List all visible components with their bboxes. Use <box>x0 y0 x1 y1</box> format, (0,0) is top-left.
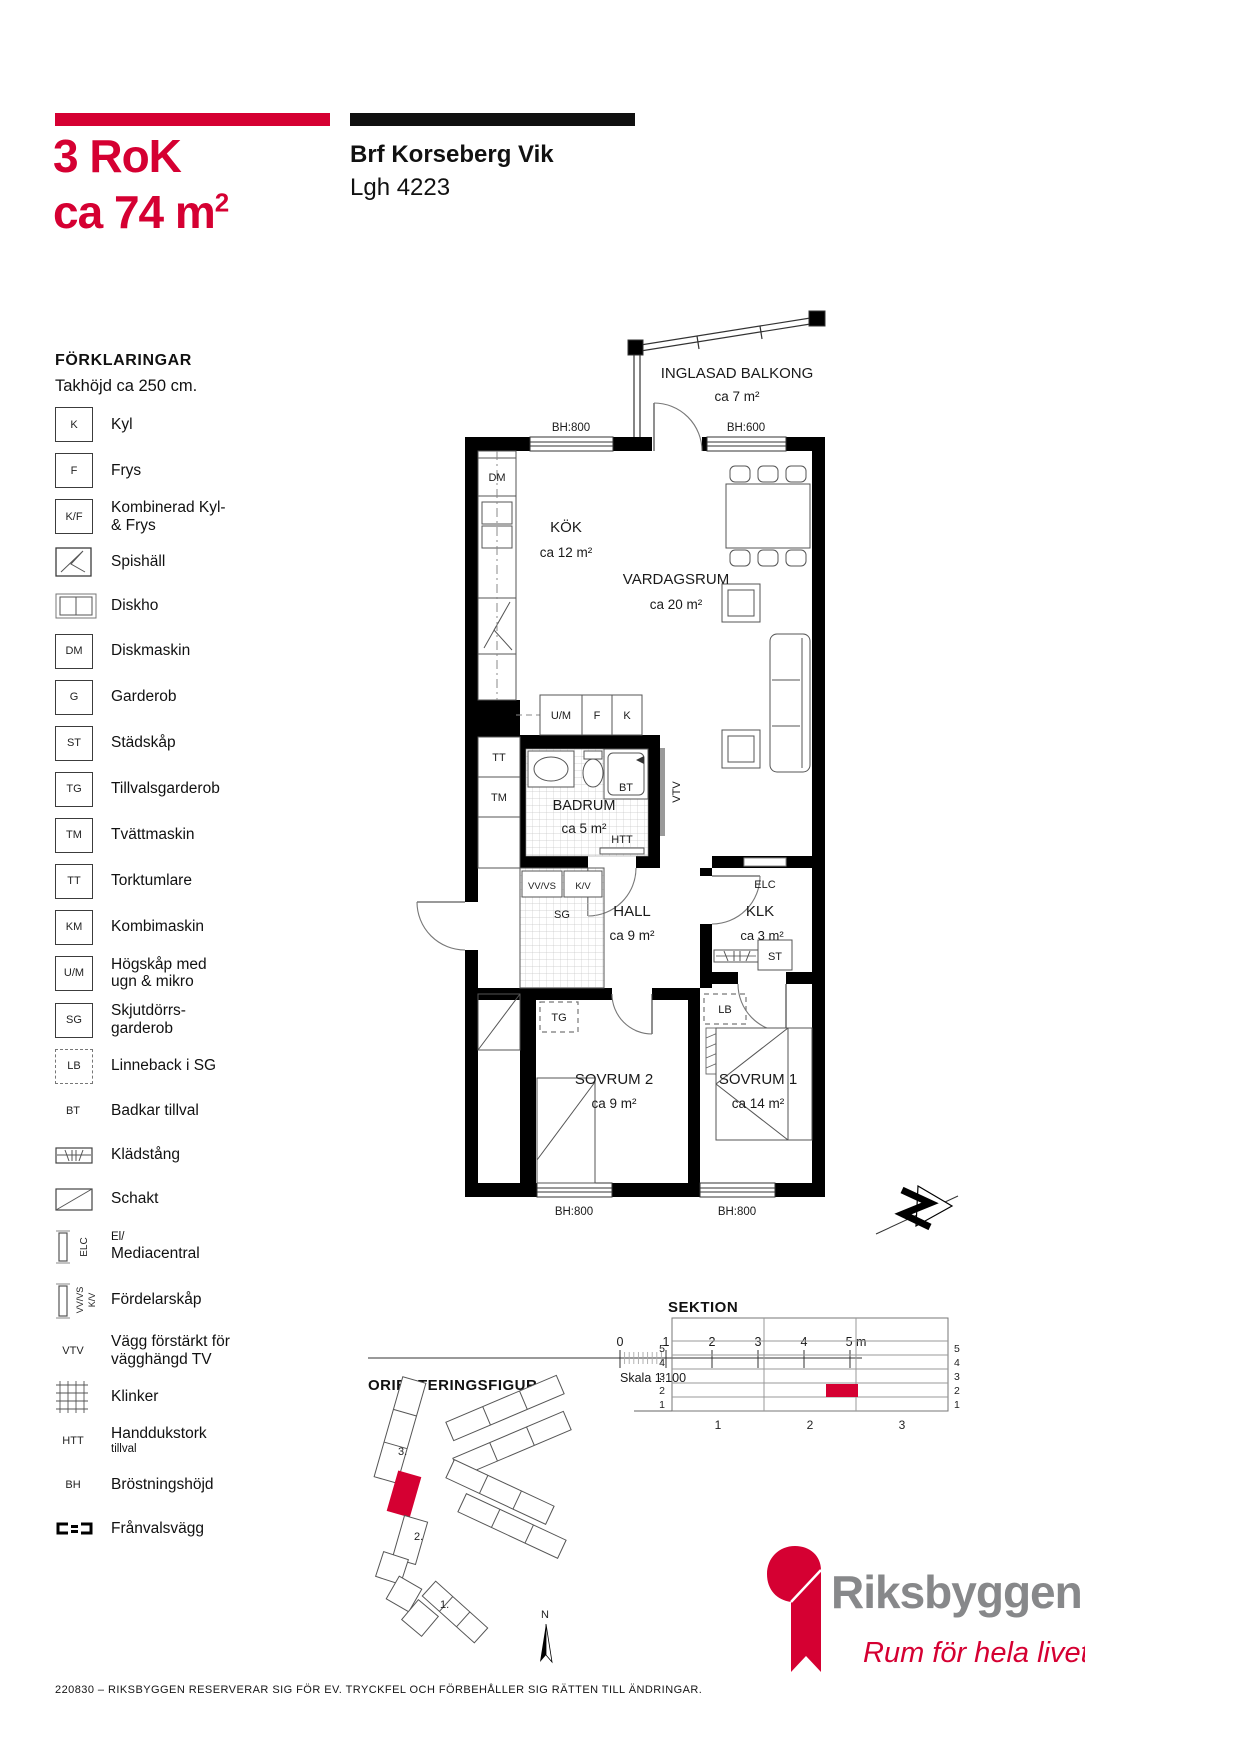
kyl-frys-symbol: K/F <box>55 499 93 534</box>
legend-subtitle: Takhöjd ca 250 cm. <box>55 377 345 396</box>
apartment-rooms: 3 RoK <box>53 128 228 184</box>
legend-item-garderob: G Garderob <box>55 680 345 715</box>
sektion-row-right: 1 <box>954 1399 960 1411</box>
bh-label-top-right: BH:600 <box>727 422 765 434</box>
kitchen-counter <box>478 451 540 715</box>
legend-item-franvalsvagg: Frånvalsvägg <box>55 1513 345 1546</box>
marker-tt: TT <box>492 752 506 764</box>
bh-label-bottom-left: BH:800 <box>555 1206 593 1218</box>
room-label-kok: KÖK <box>550 518 582 536</box>
bh-label-top-left: BH:800 <box>552 422 590 434</box>
marker-st: ST <box>768 951 782 963</box>
riksbyggen-ribbon-icon <box>767 1546 821 1672</box>
linneback-symbol: LB <box>55 1049 93 1084</box>
site-north-label: N <box>541 1609 549 1621</box>
marker-k: K <box>623 710 631 722</box>
marker-tg: TG <box>551 1012 566 1024</box>
svg-text:K/V: K/V <box>87 1293 97 1308</box>
klk-kladstang <box>714 950 758 962</box>
marker-bt: BT <box>619 782 633 794</box>
legend-item-kyl-frys: K/F Kombinerad Kyl-& Frys <box>55 499 345 535</box>
klinker-icon <box>55 1380 89 1414</box>
sektion-row-left: 3 <box>659 1371 665 1383</box>
scale-tick-4: 4 <box>801 1335 808 1349</box>
marker-kv: K/V <box>575 881 591 892</box>
legend-item-diskmaskin: DM Diskmaskin <box>55 634 345 669</box>
hogskap-symbol: U/M <box>55 956 93 991</box>
legend-item-kyl: K Kyl <box>55 407 345 442</box>
logo-tagline: Rum för hela livet <box>863 1637 1085 1669</box>
sektion-row-left: 1 <box>659 1399 665 1411</box>
kladstang-icon <box>55 1147 93 1164</box>
scale-tick-0: 0 <box>617 1335 624 1349</box>
room-label-klk: KLK <box>746 903 774 920</box>
room-area-badrum: ca 5 m² <box>561 821 607 836</box>
torktumlare-symbol: TT <box>55 864 93 899</box>
room-label-vardagsrum: VARDAGSRUM <box>623 571 729 588</box>
scale-tick-2: 2 <box>709 1335 716 1349</box>
site-north-needle <box>540 1624 552 1662</box>
marker-f: F <box>594 710 601 722</box>
marker-tm: TM <box>491 792 507 804</box>
site-label-2: 2. <box>414 1531 423 1543</box>
diskho-icon <box>55 593 97 619</box>
spishall-icon <box>55 547 93 578</box>
room-area-sovrum1: ca 14 m² <box>732 1096 785 1111</box>
sektion-col-label: 2 <box>807 1418 814 1432</box>
sektion-floor-marker <box>826 1384 858 1397</box>
apartment-area: ca 74 m2 <box>53 184 228 240</box>
room-label-sovrum2: SOVRUM 2 <box>575 1071 653 1088</box>
sektion-row-right: 4 <box>954 1357 960 1369</box>
franvalsvagg-icon <box>55 1522 95 1536</box>
marker-elc: ELC <box>754 879 775 891</box>
logo-wordmark: Riksbyggen <box>831 1566 1082 1618</box>
bh-label-bottom-right: BH:800 <box>718 1206 756 1218</box>
apartment-type-title: 3 RoK ca 74 m2 <box>53 128 228 240</box>
legend-item-brostningshojd: BH Bröstningshöjd <box>55 1469 345 1502</box>
marker-dm: DM <box>488 472 505 484</box>
site-plan <box>374 1375 571 1643</box>
legend-item-diskho: Diskho <box>55 590 345 623</box>
black-accent-bar <box>350 113 635 126</box>
apartment-number: Lgh 4223 <box>350 171 554 204</box>
legend-item-linneback: LB Linneback i SG <box>55 1049 345 1084</box>
marker-lb: LB <box>718 1004 731 1016</box>
room-area-klk: ca 3 m² <box>740 928 784 943</box>
tillvalsgarderob-symbol: TG <box>55 772 93 807</box>
legend-item-hogskap: U/M Högskåp medugn & mikro <box>55 956 345 992</box>
schakt-icon <box>55 1188 93 1211</box>
sektion-title: SEKTION <box>668 1299 738 1316</box>
legend-item-tillvalsgarderob: TG Tillvalsgarderob <box>55 772 345 807</box>
svg-text:VV/VS: VV/VS <box>75 1287 85 1314</box>
scale-tick-3: 3 <box>755 1335 762 1349</box>
marker-htt: HTT <box>611 834 633 846</box>
riksbyggen-logo: Riksbyggen Rum för hela livet <box>765 1540 1085 1690</box>
diskmaskin-symbol: DM <box>55 634 93 669</box>
room-area-kok: ca 12 m² <box>540 545 593 560</box>
legend-item-kladstang: Klädstång <box>55 1139 345 1172</box>
vtv-symbol: VTV <box>55 1345 91 1357</box>
svg-text:ELC: ELC <box>79 1237 90 1256</box>
room-label-hall: HALL <box>613 903 651 920</box>
legend-item-badkar: BT Badkar tillval <box>55 1095 345 1128</box>
project-name: Brf Korseberg Vik <box>350 138 554 171</box>
legend-item-stadskap: ST Städskåp <box>55 726 345 761</box>
project-header: Brf Korseberg Vik Lgh 4223 <box>350 138 554 204</box>
legend-item-tvattmaskin: TM Tvättmaskin <box>55 818 345 853</box>
legend-item-elc: ELC El/Mediacentral <box>55 1227 345 1267</box>
legend-item-skjutdorrsgarderob: SG Skjutdörrs-garderob <box>55 1002 345 1038</box>
orientering-title: ORIENTERINGSFIGUR <box>368 1377 537 1394</box>
room-label-badrum: BADRUM <box>553 798 616 814</box>
sektion-row-right: 3 <box>954 1371 960 1383</box>
elc-icon: ELC <box>55 1227 99 1267</box>
sektion-col-label: 3 <box>899 1418 906 1432</box>
legend-item-handdukstork: HTT Handdukstorktillval <box>55 1425 345 1458</box>
sektion-col-label: 1 <box>715 1418 722 1432</box>
sektion-row-right: 5 <box>954 1343 960 1355</box>
sektion-row-left: 4 <box>659 1357 665 1369</box>
room-area-hall: ca 9 m² <box>609 928 655 943</box>
bh-symbol: BH <box>55 1479 91 1491</box>
stadskap-symbol: ST <box>55 726 93 761</box>
marker-um: U/M <box>551 710 571 722</box>
legend-item-vtv: VTV Vägg förstärkt förvägghängd TV <box>55 1333 345 1369</box>
kombimaskin-symbol: KM <box>55 910 93 945</box>
red-accent-bar <box>55 113 330 126</box>
legend-title: FÖRKLARINGAR <box>55 352 345 370</box>
room-area-vardagsrum: ca 20 m² <box>650 597 703 612</box>
sektion-row-right: 2 <box>954 1385 960 1397</box>
legend-item-schakt: Schakt <box>55 1183 345 1216</box>
schakt-shape <box>478 994 520 1050</box>
site-label-1: 1. <box>440 1599 449 1611</box>
marker-vtv: VTV <box>671 781 683 803</box>
sg-symbol: SG <box>55 1003 93 1038</box>
fordelarskap-icon: VV/VSK/V <box>55 1278 99 1322</box>
legend-item-kombimaskin: KM Kombimaskin <box>55 910 345 945</box>
sektion-row-left: 2 <box>659 1385 665 1397</box>
sektion-row-left: 5 <box>659 1343 665 1355</box>
legend-item-torktumlare: TT Torktumlare <box>55 864 345 899</box>
frys-symbol: F <box>55 453 93 488</box>
floor-plan: INGLASAD BALKONG ca 7 m² KÖK ca 12 m² VA… <box>330 300 1010 1270</box>
room-label-balkong: INGLASAD BALKONG <box>661 365 814 382</box>
legend-item-frys: F Frys <box>55 453 345 488</box>
legend: FÖRKLARINGAR Takhöjd ca 250 cm. K Kyl F … <box>55 352 345 1546</box>
tvattmaskin-symbol: TM <box>55 818 93 853</box>
sektion-figure: SEKTION 5 4 3 2 1 5 4 3 2 1 1 2 3 <box>634 1299 960 1432</box>
marker-sg: SG <box>554 909 570 921</box>
bedroom-closets <box>478 994 746 1074</box>
legend-item-fordelarskap: VV/VSK/V Fördelarskåp <box>55 1278 345 1322</box>
marker-vvvs: VV/VS <box>528 881 556 892</box>
htt-symbol: HTT <box>55 1435 91 1447</box>
garderob-symbol: G <box>55 680 93 715</box>
site-label-3: 3. <box>398 1446 407 1458</box>
north-arrow-icon <box>876 1186 958 1234</box>
footer-disclaimer: 220830 – RIKSBYGGEN RESERVERAR SIG FÖR E… <box>55 1684 702 1696</box>
room-area-sovrum2: ca 9 m² <box>591 1096 637 1111</box>
legend-item-klinker: Klinker <box>55 1380 345 1414</box>
living-furniture <box>722 466 810 772</box>
vtv-wall-strip <box>660 748 665 836</box>
legend-item-spishall: Spishäll <box>55 546 345 579</box>
badkar-symbol: BT <box>55 1105 91 1117</box>
kyl-symbol: K <box>55 407 93 442</box>
room-area-balkong: ca 7 m² <box>714 389 760 404</box>
room-label-sovrum1: SOVRUM 1 <box>719 1071 797 1088</box>
